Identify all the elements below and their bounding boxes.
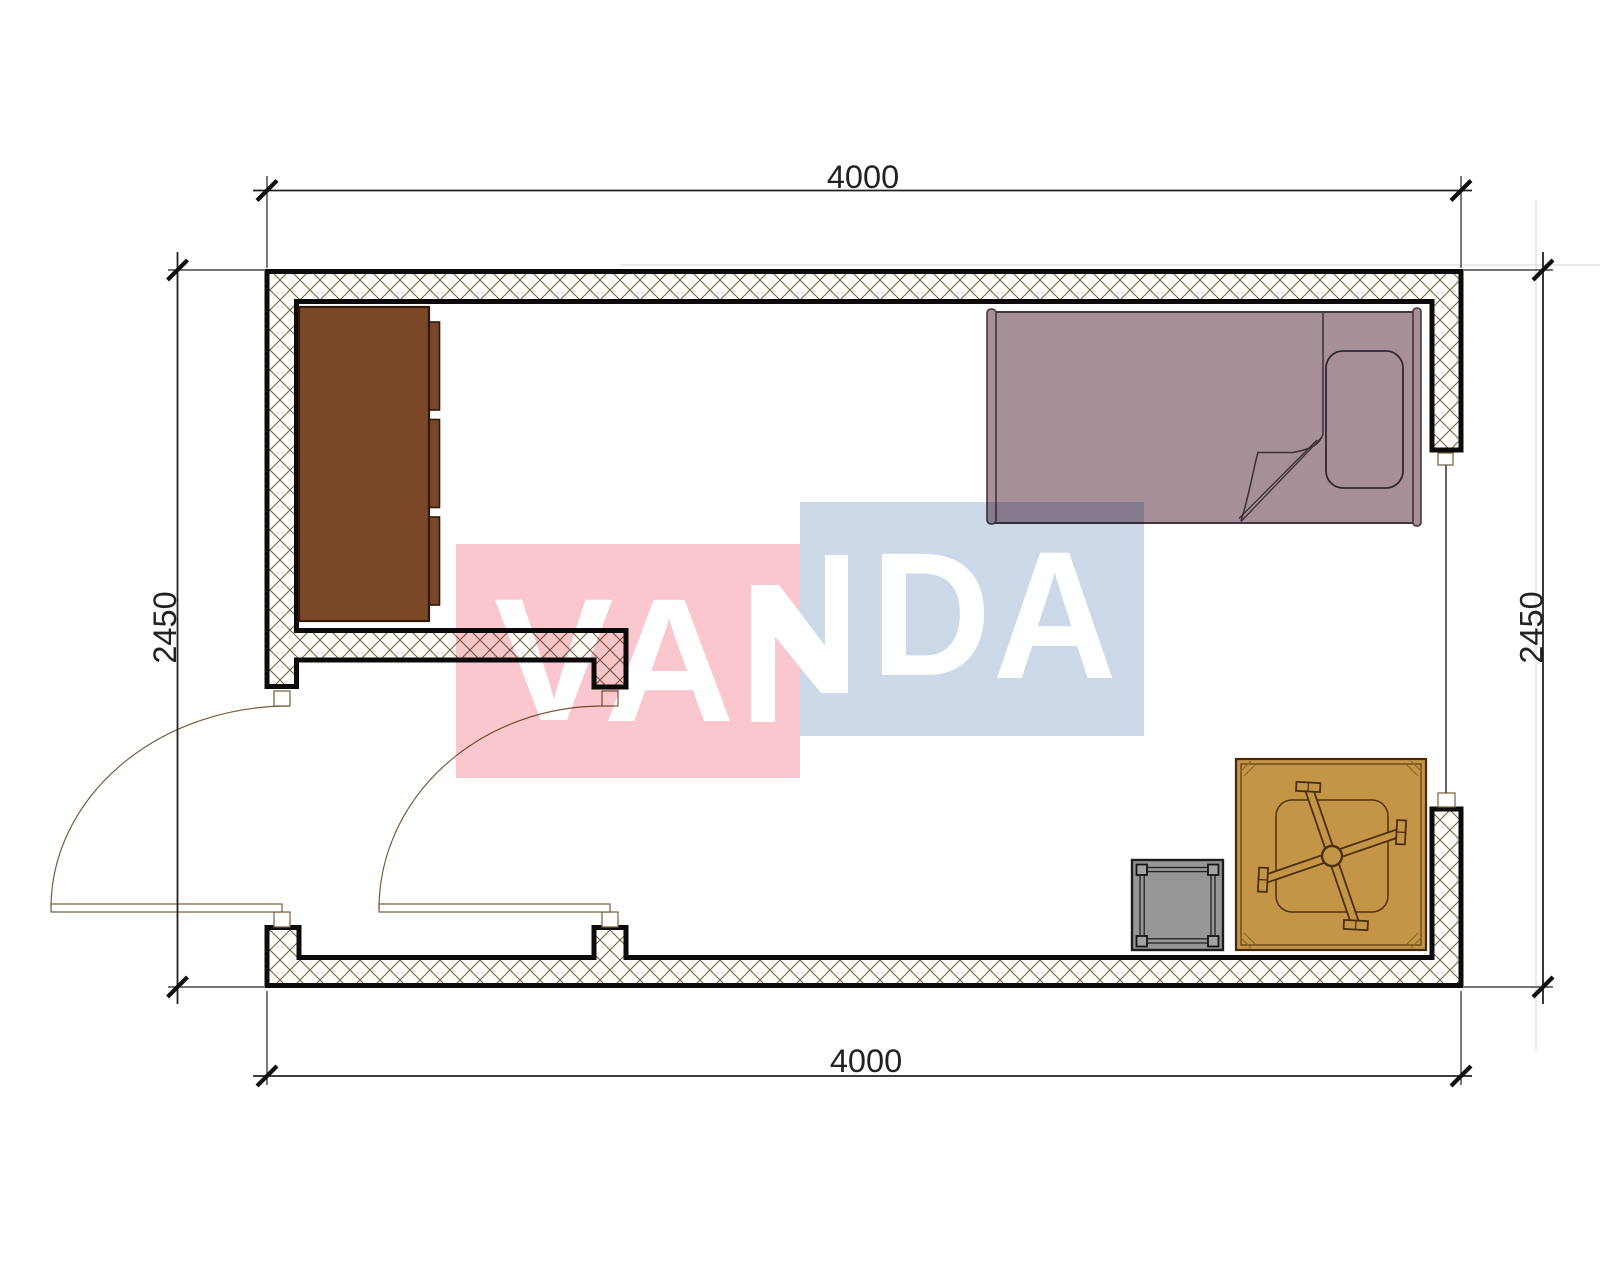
svg-text:A: A — [604, 562, 735, 759]
svg-text:A: A — [993, 514, 1117, 717]
svg-text:V: V — [494, 562, 614, 757]
svg-text:D: D — [871, 517, 991, 713]
